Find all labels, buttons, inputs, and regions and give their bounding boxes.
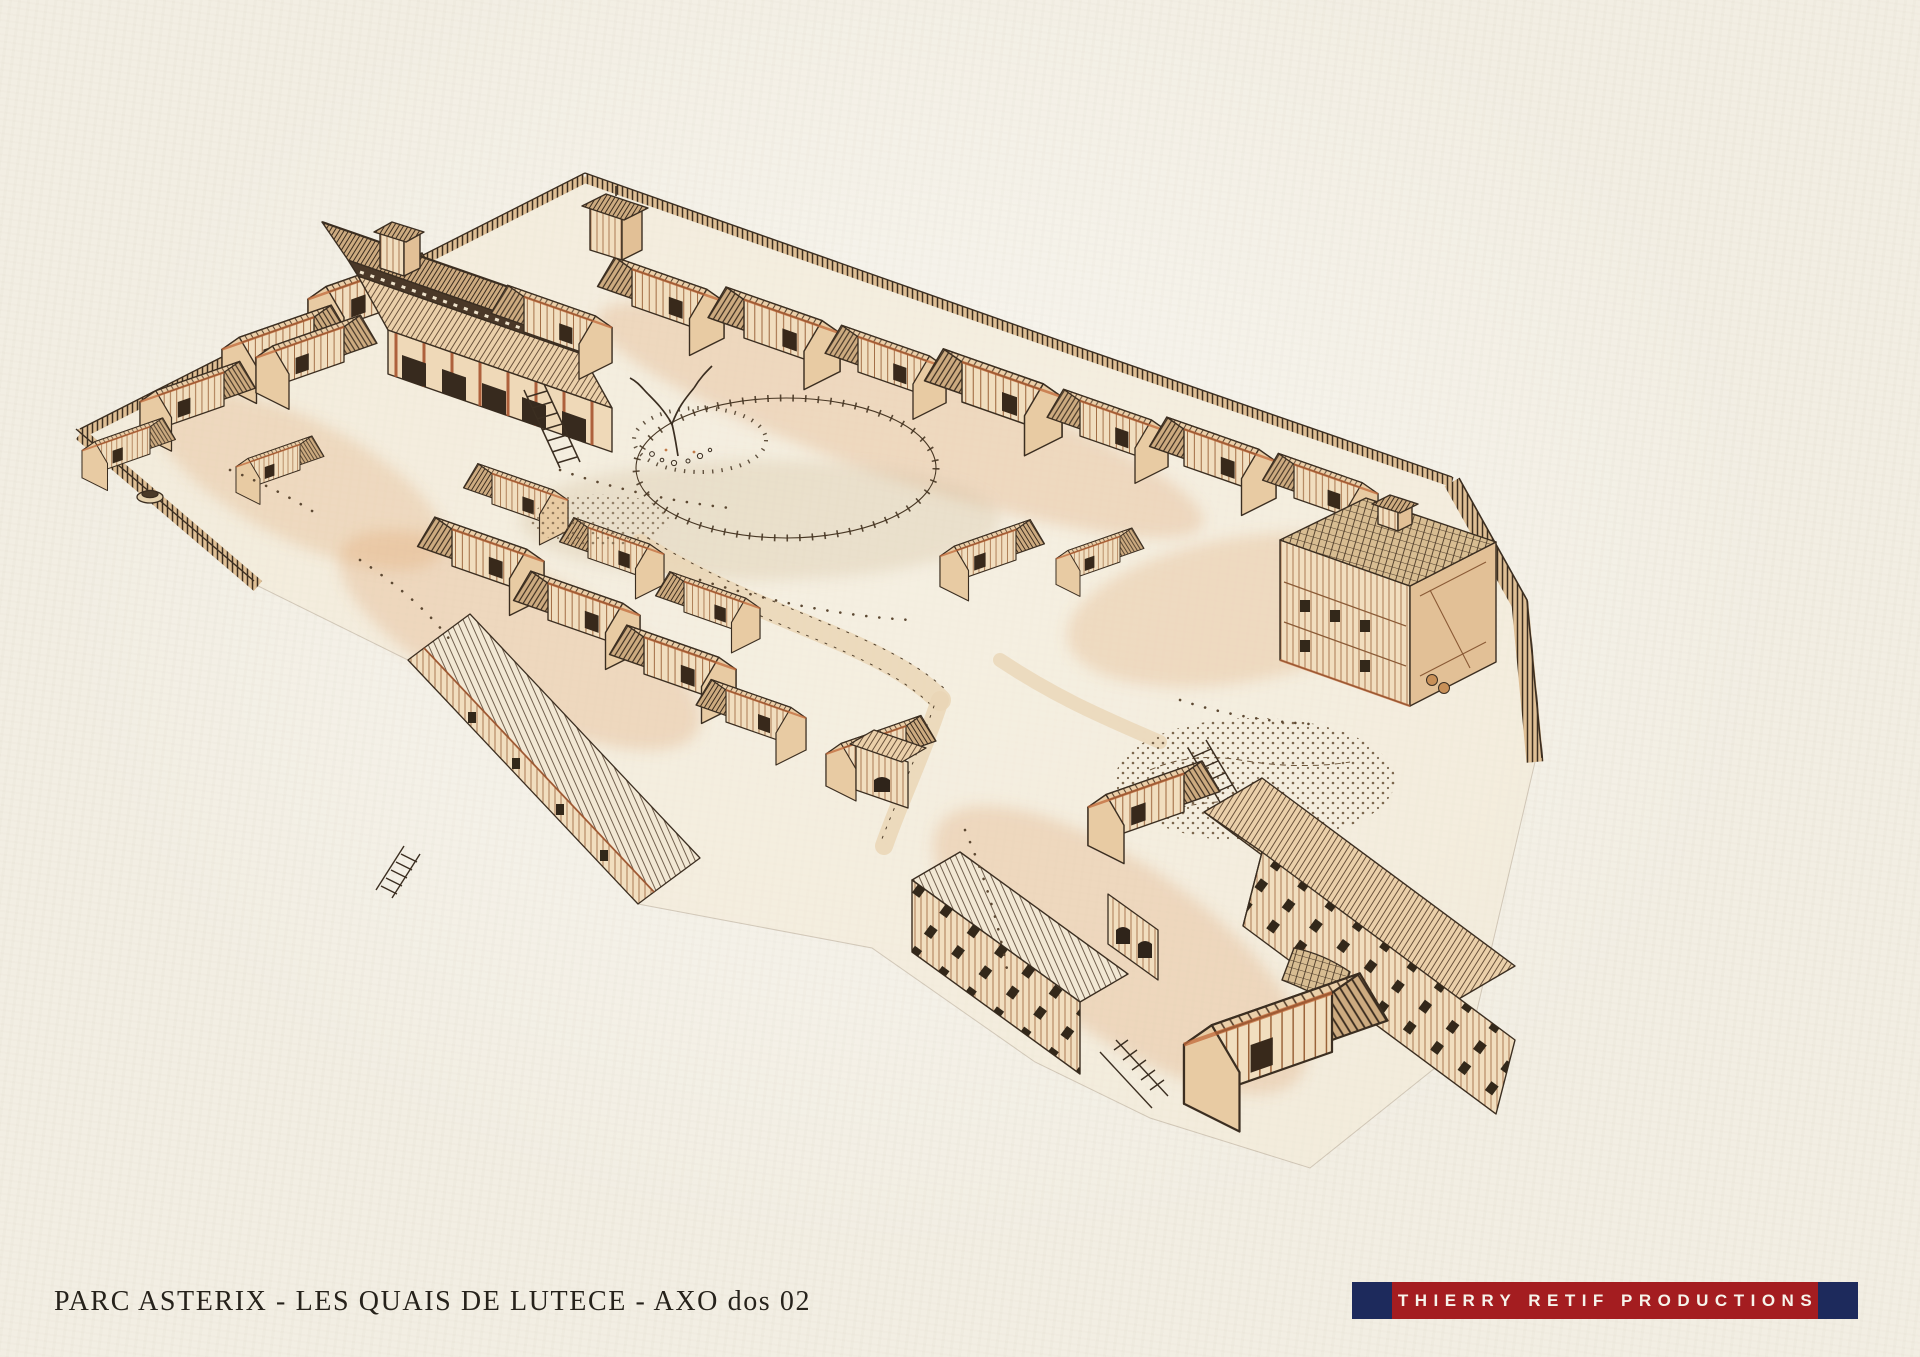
banner-right-navy-block: [1818, 1282, 1858, 1319]
axonometric-village-drawing: [0, 0, 1920, 1357]
hall-west-tower: [374, 222, 424, 276]
banner-red-block: THIERRY RETIF PRODUCTIONS: [1392, 1282, 1818, 1319]
banner-left-navy-block: [1352, 1282, 1392, 1319]
block-stairs: [376, 846, 420, 898]
corner-well: [137, 490, 163, 503]
drawing-title: PARC ASTERIX - LES QUAIS DE LUTECE - AXO…: [54, 1282, 811, 1322]
studio-name: THIERRY RETIF PRODUCTIONS: [1398, 1291, 1818, 1311]
credit-banner: THIERRY RETIF PRODUCTIONS: [1352, 1282, 1858, 1319]
concept-board: PARC ASTERIX - LES QUAIS DE LUTECE - AXO…: [0, 0, 1920, 1357]
